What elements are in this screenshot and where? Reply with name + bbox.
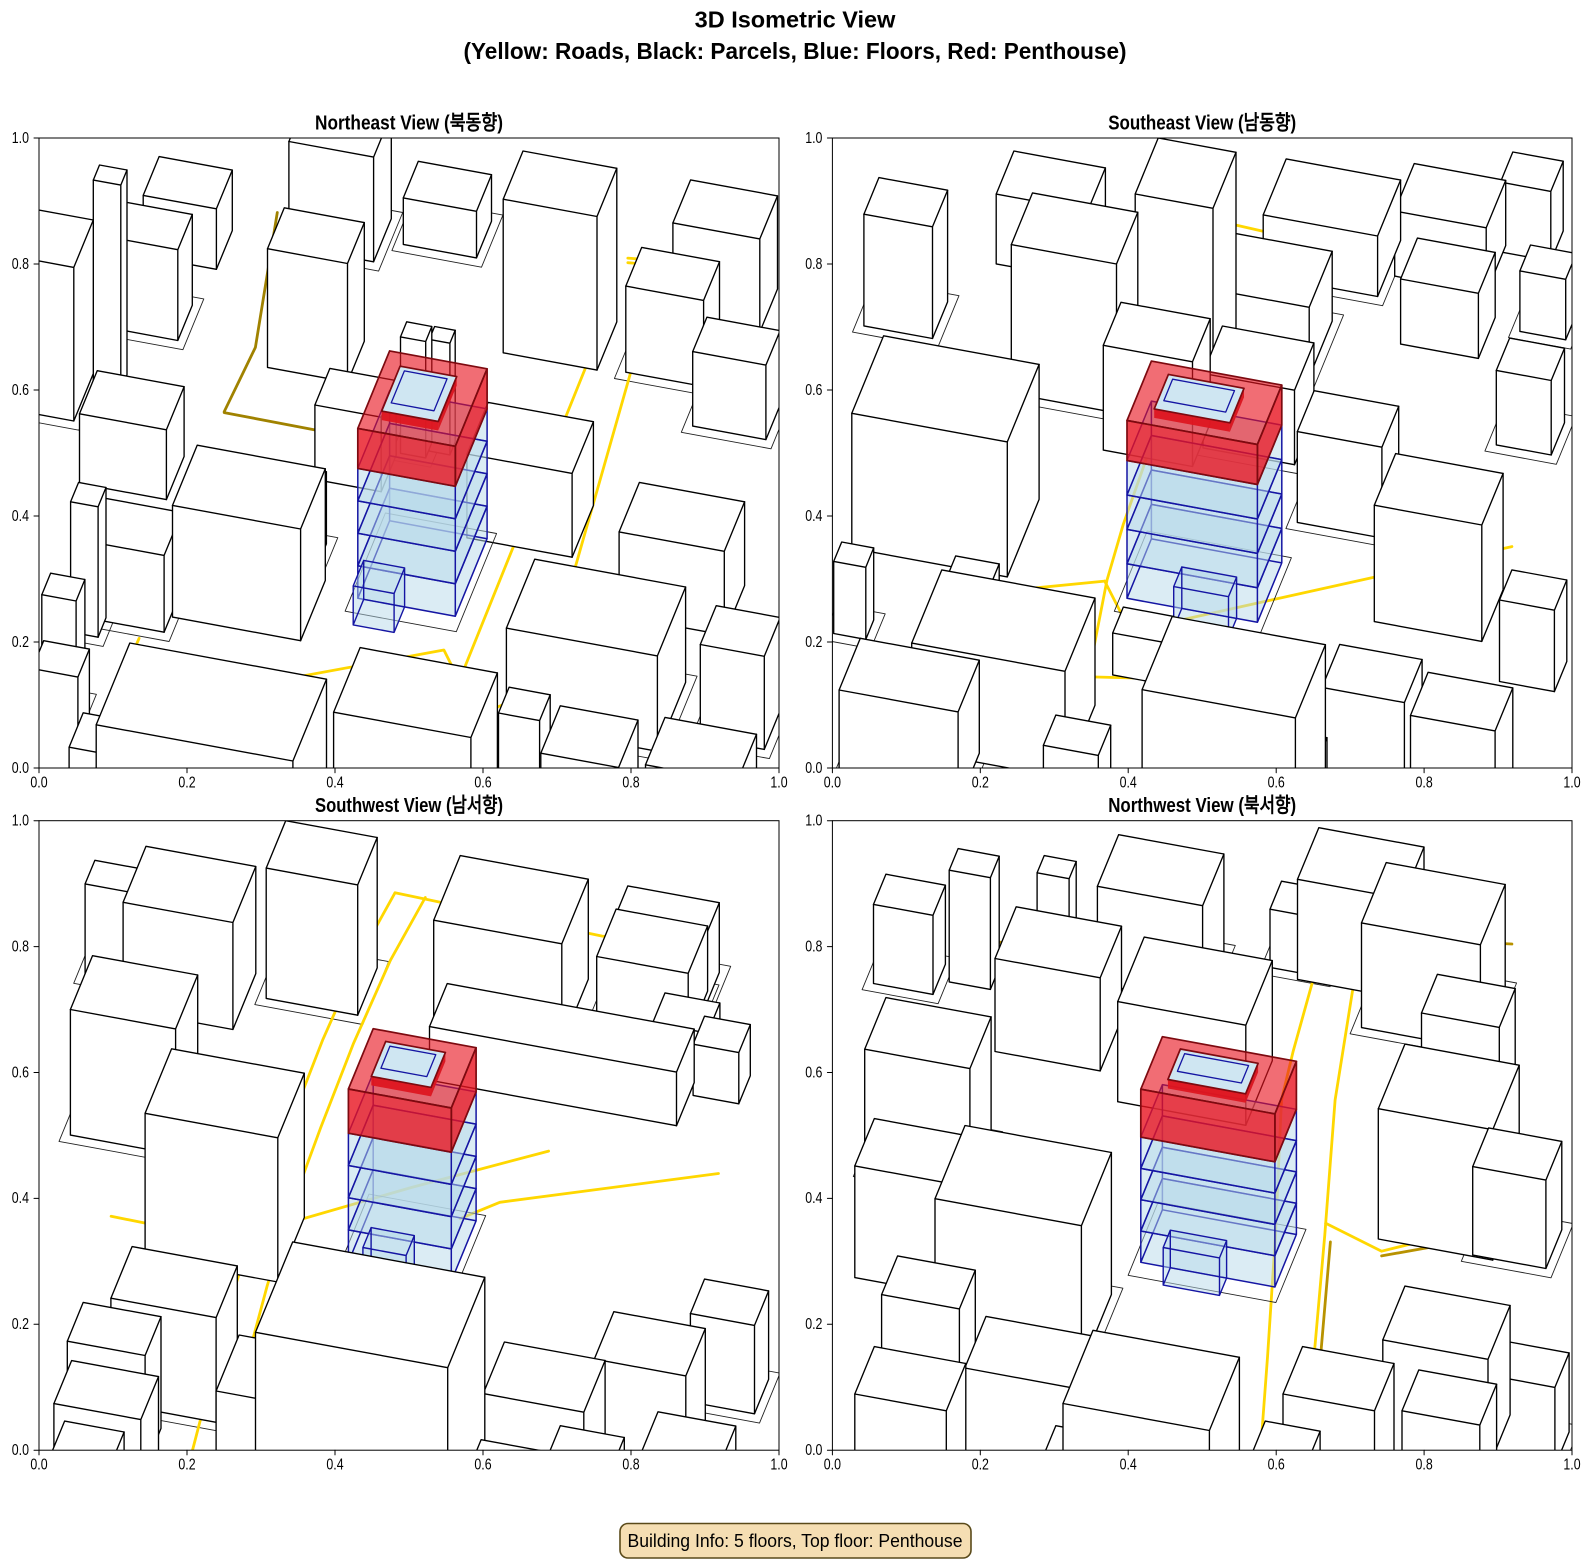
- svg-text:0.0: 0.0: [824, 1457, 841, 1474]
- svg-text:0.8: 0.8: [805, 938, 822, 955]
- svg-text:0.2: 0.2: [805, 634, 822, 651]
- svg-text:Building Info: 5 floors, Top f: Building Info: 5 floors, Top floor: Pent…: [628, 1531, 963, 1551]
- svg-text:0.6: 0.6: [805, 1064, 822, 1081]
- svg-text:0.6: 0.6: [805, 382, 822, 399]
- svg-text:0.4: 0.4: [1120, 1457, 1138, 1474]
- svg-text:0.8: 0.8: [1416, 1457, 1433, 1474]
- svg-text:0.0: 0.0: [805, 760, 822, 777]
- svg-text:0.6: 0.6: [1268, 775, 1285, 792]
- svg-text:0.8: 0.8: [12, 938, 29, 955]
- svg-text:0.0: 0.0: [824, 775, 841, 792]
- svg-text:0.6: 0.6: [12, 1064, 29, 1081]
- svg-text:0.2: 0.2: [178, 1457, 195, 1474]
- svg-text:0.6: 0.6: [474, 775, 491, 792]
- svg-text:Northeast View (북동향): Northeast View (북동향): [315, 112, 503, 135]
- svg-text:1.0: 1.0: [805, 130, 822, 147]
- svg-text:0.4: 0.4: [12, 1190, 30, 1207]
- svg-text:0.0: 0.0: [30, 1457, 47, 1474]
- svg-text:1.0: 1.0: [770, 1457, 787, 1474]
- svg-text:0.8: 0.8: [622, 1457, 639, 1474]
- svg-text:Southeast View (남동향): Southeast View (남동향): [1108, 112, 1296, 135]
- svg-text:0.8: 0.8: [805, 256, 822, 273]
- svg-text:1.0: 1.0: [805, 813, 822, 830]
- svg-text:1.0: 1.0: [1563, 1457, 1580, 1474]
- svg-text:Southwest View (남서향): Southwest View (남서향): [315, 794, 503, 817]
- svg-text:0.4: 0.4: [12, 508, 30, 525]
- svg-text:0.4: 0.4: [326, 1457, 344, 1474]
- svg-text:0.0: 0.0: [30, 775, 47, 792]
- svg-text:0.8: 0.8: [622, 775, 639, 792]
- svg-text:0.0: 0.0: [12, 1442, 29, 1459]
- svg-text:0.6: 0.6: [1268, 1457, 1285, 1474]
- svg-text:0.4: 0.4: [1120, 775, 1138, 792]
- svg-text:1.0: 1.0: [1563, 775, 1580, 792]
- svg-text:1.0: 1.0: [12, 130, 29, 147]
- svg-text:0.2: 0.2: [972, 1457, 989, 1474]
- svg-text:0.4: 0.4: [805, 508, 823, 525]
- svg-text:0.2: 0.2: [972, 775, 989, 792]
- svg-text:0.0: 0.0: [805, 1442, 822, 1459]
- svg-text:0.8: 0.8: [12, 256, 29, 273]
- svg-text:0.2: 0.2: [12, 1316, 29, 1333]
- svg-text:0.6: 0.6: [474, 1457, 491, 1474]
- svg-text:0.8: 0.8: [1416, 775, 1433, 792]
- svg-text:0.2: 0.2: [805, 1316, 822, 1333]
- svg-text:0.2: 0.2: [178, 775, 195, 792]
- svg-text:3D Isometric View: 3D Isometric View: [695, 7, 896, 33]
- svg-text:1.0: 1.0: [770, 775, 787, 792]
- svg-text:1.0: 1.0: [12, 813, 29, 830]
- svg-text:0.4: 0.4: [326, 775, 344, 792]
- svg-text:Northwest View (북서향): Northwest View (북서향): [1108, 794, 1296, 817]
- svg-text:0.0: 0.0: [12, 760, 29, 777]
- svg-text:0.2: 0.2: [12, 634, 29, 651]
- svg-text:0.6: 0.6: [12, 382, 29, 399]
- svg-text:0.4: 0.4: [805, 1190, 823, 1207]
- svg-text:(Yellow: Roads, Black: Parcels: (Yellow: Roads, Black: Parcels, Blue: Fl…: [464, 38, 1127, 64]
